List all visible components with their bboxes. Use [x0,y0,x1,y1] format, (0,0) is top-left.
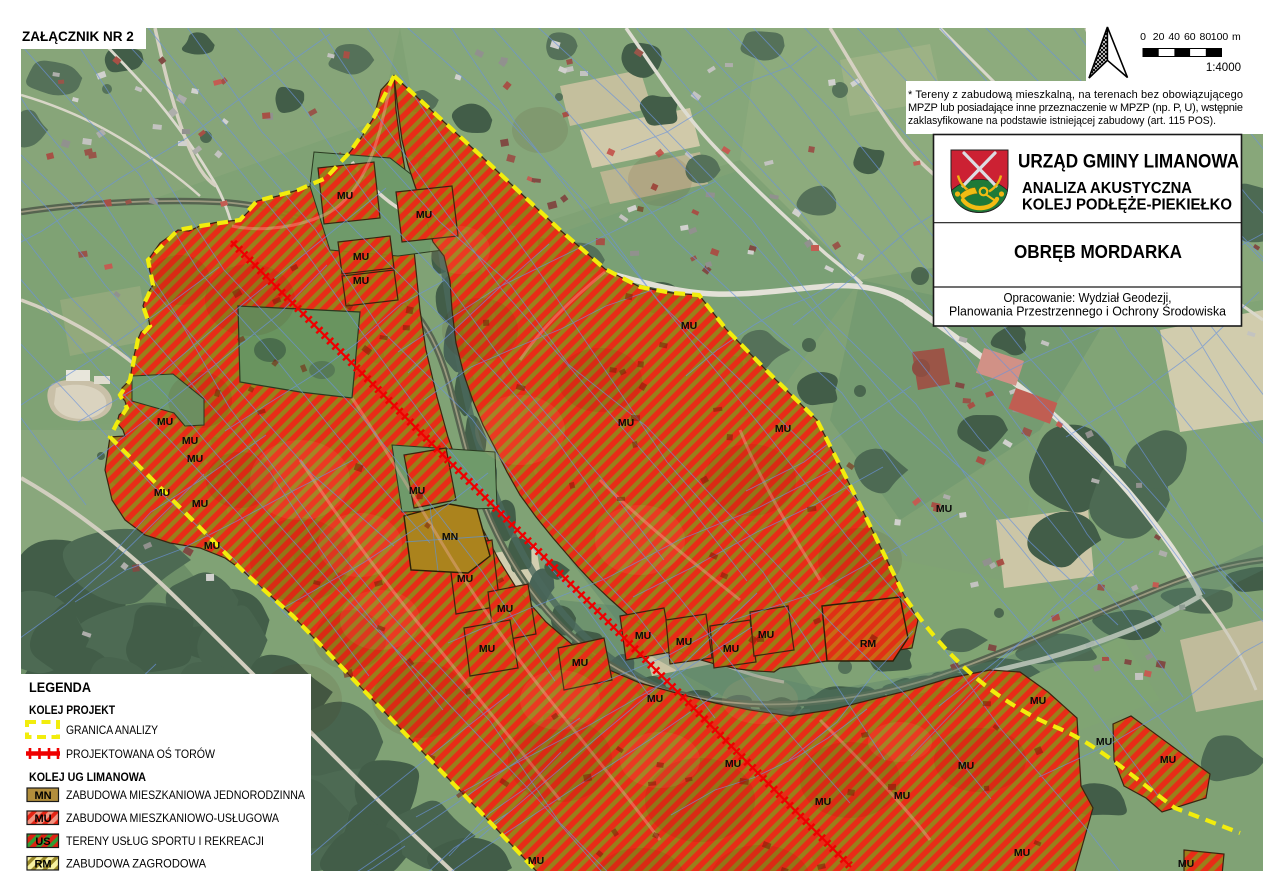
svg-text:MU: MU [457,573,473,585]
svg-text:MU: MU [1014,847,1030,859]
svg-text:RM: RM [34,859,51,871]
svg-text:20: 20 [1153,31,1165,43]
svg-text:URZĄD GMINY LIMANOWA: URZĄD GMINY LIMANOWA [1018,151,1239,173]
svg-text:MU: MU [775,423,791,435]
svg-text:m: m [1232,31,1241,43]
svg-text:ZABUDOWA MIESZKANIOWA JEDNOROD: ZABUDOWA MIESZKANIOWA JEDNORODZINNA [66,790,305,802]
svg-text:MU: MU [528,855,544,867]
svg-text:MU: MU [416,209,432,221]
svg-text:MU: MU [192,498,208,510]
svg-text:MU: MU [676,636,692,648]
svg-text:MU: MU [154,487,170,499]
svg-text:0: 0 [1140,31,1146,43]
svg-text:LEGENDA: LEGENDA [29,680,91,695]
svg-text:MU: MU [1160,754,1176,766]
svg-text:KOLEJ UG LIMANOWA: KOLEJ UG LIMANOWA [29,770,146,784]
svg-text:MU: MU [758,629,774,641]
svg-text:TERENY USŁUG SPORTU I REKREACJ: TERENY USŁUG SPORTU I REKREACJI [66,836,264,848]
svg-text:MU: MU [353,251,369,263]
svg-text:100: 100 [1211,31,1229,43]
svg-text:MU: MU [182,435,198,447]
svg-text:OBRĘB MORDARKA: OBRĘB MORDARKA [1014,242,1182,262]
svg-text:KOLEJ PODŁĘŻE-PIEKIEŁKO: KOLEJ PODŁĘŻE-PIEKIEŁKO [1022,196,1232,214]
svg-text:MU: MU [409,485,425,497]
svg-text:MN: MN [34,790,51,802]
svg-text:80: 80 [1200,31,1212,43]
svg-text:ZAŁĄCZNIK NR 2: ZAŁĄCZNIK NR 2 [22,29,134,44]
svg-text:MU: MU [815,796,831,808]
svg-text:MU: MU [723,643,739,655]
svg-text:MU: MU [1030,695,1046,707]
svg-text:PROJEKTOWANA OŚ TORÓW: PROJEKTOWANA OŚ TORÓW [66,746,216,761]
svg-text:KOLEJ PROJEKT: KOLEJ PROJEKT [29,703,116,717]
svg-text:Planowania Przestrzennego i Oc: Planowania Przestrzennego i Ochrony Środ… [949,304,1227,319]
svg-text:MU: MU [497,603,513,615]
svg-text:MU: MU [34,813,51,825]
svg-text:MU: MU [635,630,651,642]
svg-text:ZABUDOWA MIESZKANIOWO-USŁUGOWA: ZABUDOWA MIESZKANIOWO-USŁUGOWA [66,813,279,825]
svg-text:MU: MU [157,416,173,428]
svg-text:* Tereny z zabudową mieszkalną: * Tereny z zabudową mieszkalną, na teren… [908,89,1243,101]
svg-text:zaklasyfikowane na podstawie i: zaklasyfikowane na podstawie istniejącej… [908,115,1216,127]
svg-text:MU: MU [958,760,974,772]
svg-text:MU: MU [187,453,203,465]
svg-text:MN: MN [442,531,458,543]
svg-text:60: 60 [1184,31,1196,43]
svg-text:MU: MU [479,643,495,655]
svg-text:MPZP lub posiadające inne prze: MPZP lub posiadające inne przeznaczenie … [908,102,1243,114]
svg-text:ANALIZA AKUSTYCZNA: ANALIZA AKUSTYCZNA [1022,180,1192,197]
svg-text:MU: MU [572,657,588,669]
svg-text:MU: MU [1096,736,1112,748]
svg-text:1:4000: 1:4000 [1206,62,1241,74]
svg-text:MU: MU [647,693,663,705]
svg-text:MU: MU [337,190,353,202]
svg-text:ZABUDOWA ZAGRODOWA: ZABUDOWA ZAGRODOWA [66,859,206,871]
svg-text:GRANICA ANALIZY: GRANICA ANALIZY [66,724,158,737]
svg-text:MU: MU [618,417,634,429]
svg-text:MU: MU [936,503,952,515]
svg-text:MU: MU [725,758,741,770]
svg-text:RM: RM [860,638,877,650]
svg-text:US: US [35,836,50,848]
svg-text:MU: MU [1178,858,1194,870]
svg-text:MU: MU [681,320,697,332]
svg-text:MU: MU [353,275,369,287]
svg-text:40: 40 [1168,31,1180,43]
svg-text:MU: MU [894,790,910,802]
svg-text:MU: MU [204,540,220,552]
